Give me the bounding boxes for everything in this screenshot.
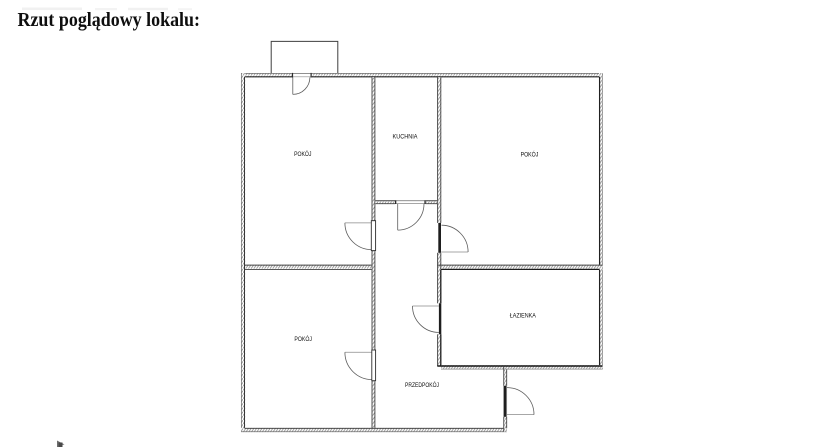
svg-text:POKÓJ: POKÓJ [294, 149, 311, 158]
svg-text:KUCHNIA: KUCHNIA [393, 133, 419, 140]
svg-text:PRZEDPOKÓJ: PRZEDPOKÓJ [405, 380, 439, 389]
svg-text:POKÓJ: POKÓJ [294, 334, 312, 343]
svg-text:Rzut poglądowy lokalu:: Rzut poglądowy lokalu: [18, 10, 201, 31]
svg-text:POKÓJ: POKÓJ [521, 150, 539, 159]
svg-text:ŁAZIENKA: ŁAZIENKA [510, 313, 537, 320]
